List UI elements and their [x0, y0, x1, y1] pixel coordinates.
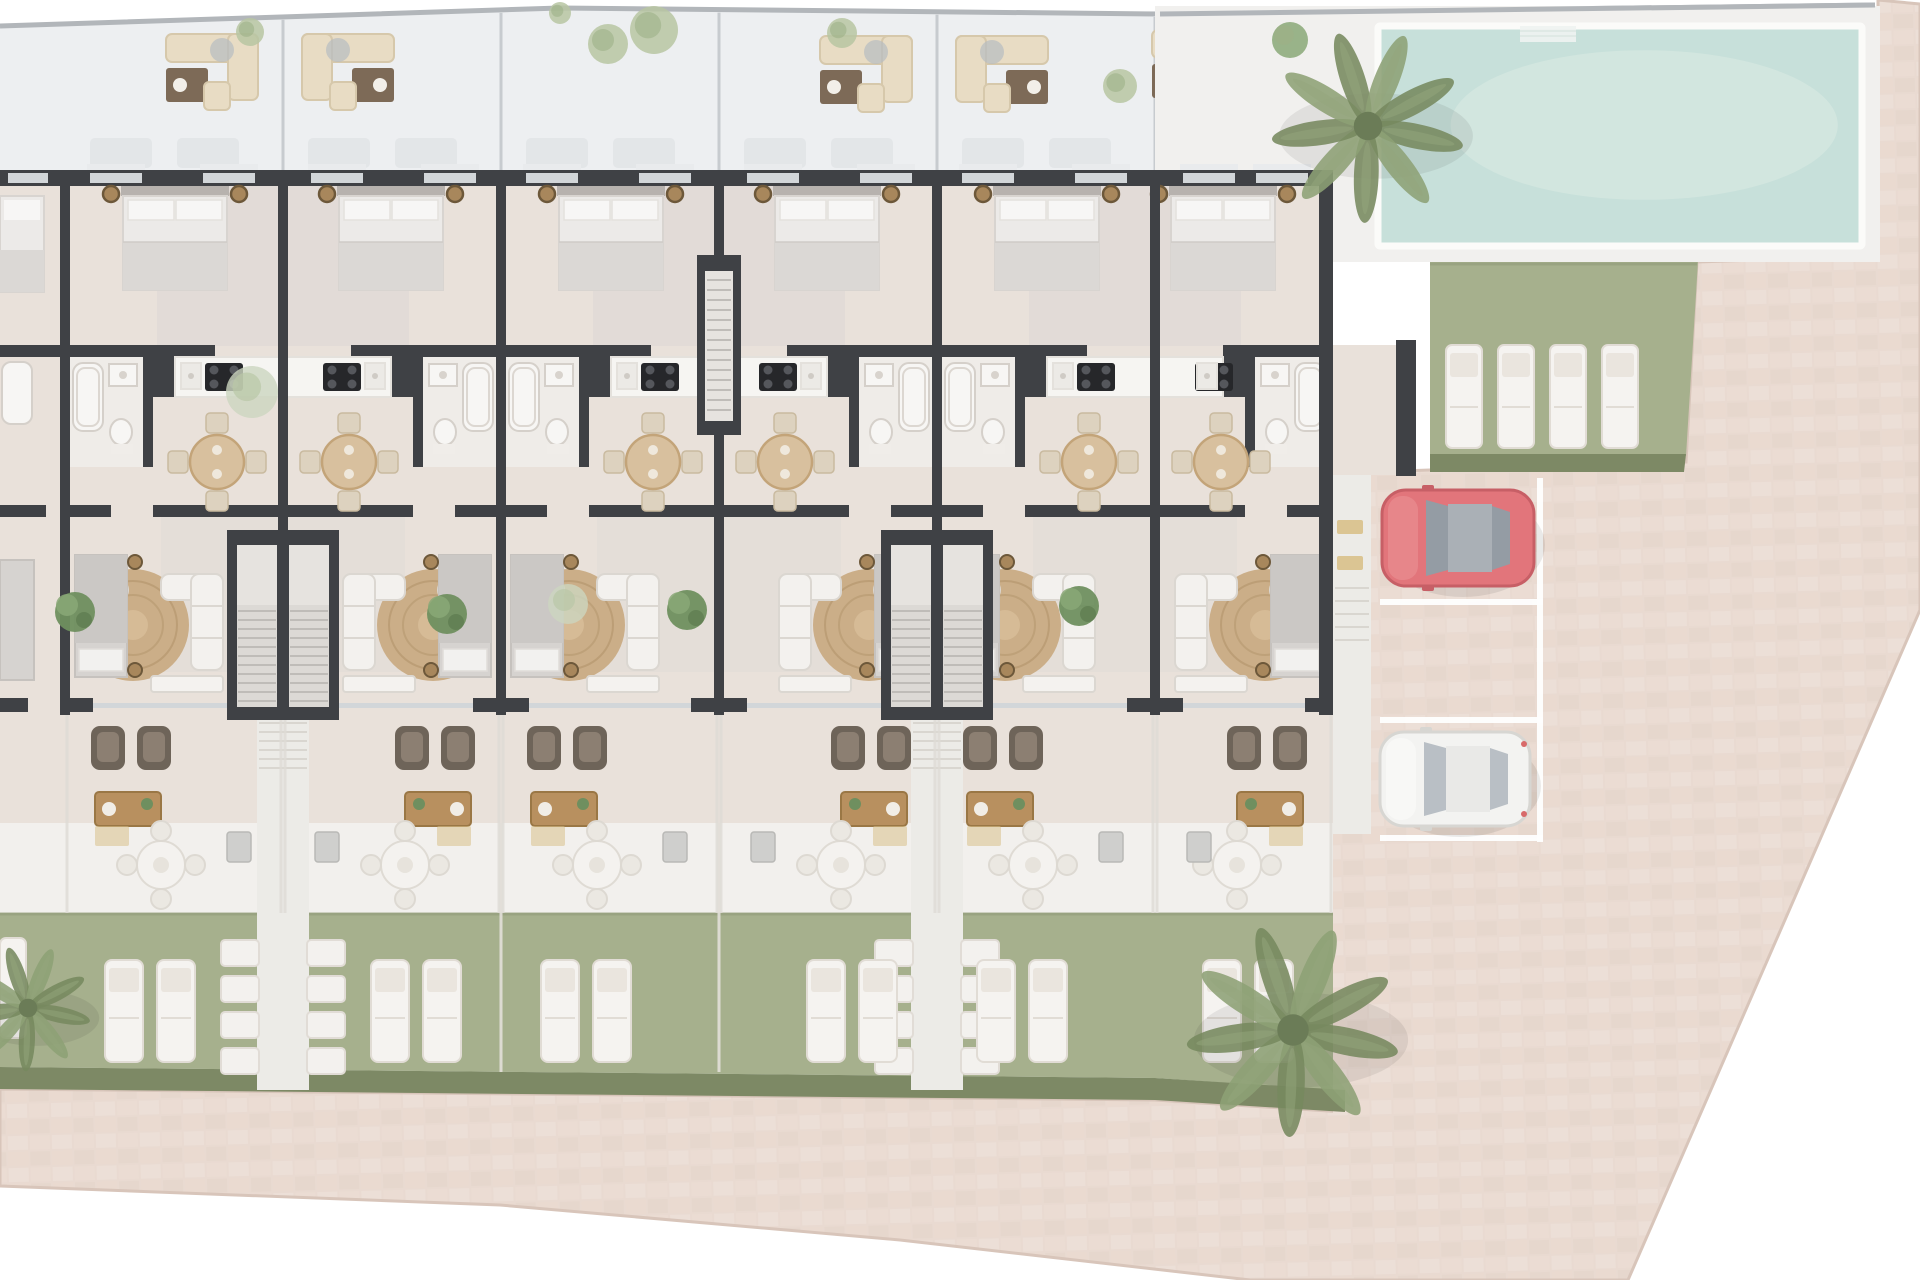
- stepping-stone: [307, 1012, 345, 1038]
- patio-chair: [797, 855, 817, 875]
- toilet: [870, 419, 892, 445]
- wood-mat: [437, 826, 471, 846]
- bbq-grill: [1099, 832, 1123, 862]
- stool: [424, 555, 438, 569]
- stool: [319, 186, 335, 202]
- stool: [1000, 555, 1014, 569]
- dining-table: [626, 435, 680, 489]
- side-mirror: [1420, 825, 1432, 831]
- dining-chair: [1078, 491, 1100, 511]
- sofa: [779, 574, 811, 670]
- stool: [1000, 663, 1014, 677]
- stepping-stone: [221, 1048, 259, 1074]
- outdoor-chair: [858, 84, 884, 112]
- dining-chair: [682, 451, 702, 473]
- roof-lounger: [613, 138, 675, 168]
- patio-chair: [1023, 889, 1043, 909]
- dining-table: [758, 435, 812, 489]
- stool: [424, 663, 438, 677]
- windshield: [1426, 500, 1448, 576]
- party-wall: [496, 170, 506, 715]
- outdoor-chair: [330, 82, 356, 110]
- stepping-stone: [307, 940, 345, 966]
- stool: [1279, 186, 1295, 202]
- dining-chair: [814, 451, 834, 473]
- stool: [564, 555, 578, 569]
- patio-chair: [1261, 855, 1281, 875]
- doormat: [1337, 556, 1363, 570]
- side-mirror: [1422, 485, 1434, 491]
- red-car: [1381, 485, 1545, 597]
- white-car: [1379, 727, 1541, 837]
- bed: [773, 186, 881, 196]
- floor-plan-canvas: [0, 0, 1920, 1280]
- stool: [564, 663, 578, 677]
- wood-mat: [873, 826, 907, 846]
- patio-chair: [151, 821, 171, 841]
- bed: [337, 186, 445, 196]
- stairwell: [227, 530, 339, 720]
- dining-chair: [246, 451, 266, 473]
- party-wall: [714, 170, 724, 715]
- tv-bench: [1023, 676, 1095, 692]
- roof-lounger: [526, 138, 588, 168]
- side-mirror: [1422, 585, 1434, 591]
- bed: [121, 186, 229, 196]
- patio-chair: [395, 821, 415, 841]
- bush: [55, 592, 95, 632]
- patio-chair: [429, 855, 449, 875]
- wood-mat: [1269, 826, 1303, 846]
- patio-chair: [621, 855, 641, 875]
- patio-chair: [361, 855, 381, 875]
- dining-chair: [1172, 451, 1192, 473]
- stool: [1103, 186, 1119, 202]
- stool: [975, 186, 991, 202]
- dining-chair: [338, 491, 360, 511]
- car-roof: [1446, 746, 1490, 812]
- bbq-grill: [751, 832, 775, 862]
- windshield: [1424, 742, 1446, 816]
- rear-window: [1492, 506, 1510, 570]
- dining-chair: [774, 413, 796, 433]
- pool-steps: [1520, 26, 1576, 42]
- patio-chair: [1227, 821, 1247, 841]
- patio-chair: [865, 855, 885, 875]
- east-wing-floor: [1333, 345, 1396, 475]
- dining-table: [322, 435, 376, 489]
- dining-chair: [300, 451, 320, 473]
- stool: [883, 186, 899, 202]
- garden-walkway: [257, 717, 309, 1090]
- sun-lounger: [1498, 345, 1534, 448]
- dining-chair: [206, 491, 228, 511]
- stool: [128, 555, 142, 569]
- patio-chair: [117, 855, 137, 875]
- stool: [667, 186, 683, 202]
- wood-mat: [967, 826, 1001, 846]
- dining-chair: [1250, 451, 1270, 473]
- stool: [447, 186, 463, 202]
- bbq-grill: [315, 832, 339, 862]
- tv-bench: [1175, 676, 1247, 692]
- dining-chair: [604, 451, 624, 473]
- bed: [0, 560, 34, 680]
- patio-chair: [831, 889, 851, 909]
- tv-bench: [151, 676, 223, 692]
- patio-chair: [553, 855, 573, 875]
- bed: [993, 186, 1101, 196]
- bed: [1169, 186, 1277, 196]
- stool: [128, 663, 142, 677]
- garden-walkway: [911, 717, 963, 1090]
- patio-chair: [1227, 889, 1247, 909]
- stool: [1256, 663, 1270, 677]
- dining-chair: [642, 491, 664, 511]
- bush: [427, 594, 467, 634]
- stool: [860, 663, 874, 677]
- building-right-wall: [1319, 170, 1333, 715]
- dining-chair: [1210, 491, 1232, 511]
- stool: [231, 186, 247, 202]
- roof-lounger: [831, 138, 893, 168]
- roof-lounger: [90, 138, 152, 168]
- patio-chair: [185, 855, 205, 875]
- stepping-stone: [221, 976, 259, 1002]
- toilet: [110, 419, 132, 445]
- party-wall: [60, 170, 70, 715]
- bed: [557, 186, 665, 196]
- dining-table: [190, 435, 244, 489]
- stepping-stone: [307, 976, 345, 1002]
- roof-lounger: [395, 138, 457, 168]
- doormat: [1337, 520, 1363, 534]
- bbq-grill: [663, 832, 687, 862]
- patio-chair: [151, 889, 171, 909]
- tv-bench: [587, 676, 659, 692]
- toilet: [434, 419, 456, 445]
- tv-bench: [779, 676, 851, 692]
- dining-chair: [1210, 413, 1232, 433]
- sofa: [343, 574, 375, 670]
- toilet: [546, 419, 568, 445]
- stepping-stone: [307, 1048, 345, 1074]
- dining-table: [1194, 435, 1248, 489]
- dining-chair: [774, 491, 796, 511]
- dining-chair: [168, 451, 188, 473]
- garden-wall: [1396, 340, 1416, 476]
- dining-chair: [1040, 451, 1060, 473]
- patio-chair: [395, 889, 415, 909]
- stool: [860, 555, 874, 569]
- sofa: [627, 574, 659, 670]
- wood-mat: [531, 826, 565, 846]
- dining-chair: [1078, 413, 1100, 433]
- patio-chair: [1023, 821, 1043, 841]
- stool: [755, 186, 771, 202]
- rear-window: [1490, 748, 1508, 810]
- dining-chair: [338, 413, 360, 433]
- patio-chair: [587, 821, 607, 841]
- roof-lounger: [744, 138, 806, 168]
- party-wall: [1150, 170, 1160, 715]
- sofa: [1175, 574, 1207, 670]
- side-mirror: [1420, 727, 1432, 733]
- dining-chair: [378, 451, 398, 473]
- stairwell: [881, 530, 993, 720]
- dining-chair: [1118, 451, 1138, 473]
- bbq-grill: [227, 832, 251, 862]
- entry-hall: [697, 255, 741, 435]
- bush: [1059, 586, 1099, 626]
- dining-chair: [642, 413, 664, 433]
- dining-chair: [736, 451, 756, 473]
- dining-table: [1062, 435, 1116, 489]
- roof-lounger: [1049, 138, 1111, 168]
- bbq-grill: [1187, 832, 1211, 862]
- outdoor-chair: [984, 84, 1010, 112]
- roof-lounger: [177, 138, 239, 168]
- car-roof: [1448, 504, 1492, 572]
- stool: [103, 186, 119, 202]
- bathtub: [2, 362, 32, 424]
- sun-lounger: [1446, 345, 1482, 448]
- tv-bench: [343, 676, 415, 692]
- sofa: [191, 574, 223, 670]
- toilet: [982, 419, 1004, 445]
- roof-lounger: [962, 138, 1024, 168]
- site-plan: [0, 0, 1920, 1280]
- patio-chair: [1057, 855, 1077, 875]
- stool: [539, 186, 555, 202]
- roof-lounger: [308, 138, 370, 168]
- patio-chair: [587, 889, 607, 909]
- bush: [667, 590, 707, 630]
- stool: [1256, 555, 1270, 569]
- outdoor-chair: [204, 82, 230, 110]
- toilet: [1266, 419, 1288, 445]
- sun-lounger: [1550, 345, 1586, 448]
- stepping-stone: [221, 1012, 259, 1038]
- stepping-stone: [221, 940, 259, 966]
- patio-chair: [831, 821, 851, 841]
- hedge: [1430, 454, 1686, 472]
- dining-chair: [206, 413, 228, 433]
- sun-lounger: [1602, 345, 1638, 448]
- patio-chair: [989, 855, 1009, 875]
- wood-mat: [95, 826, 129, 846]
